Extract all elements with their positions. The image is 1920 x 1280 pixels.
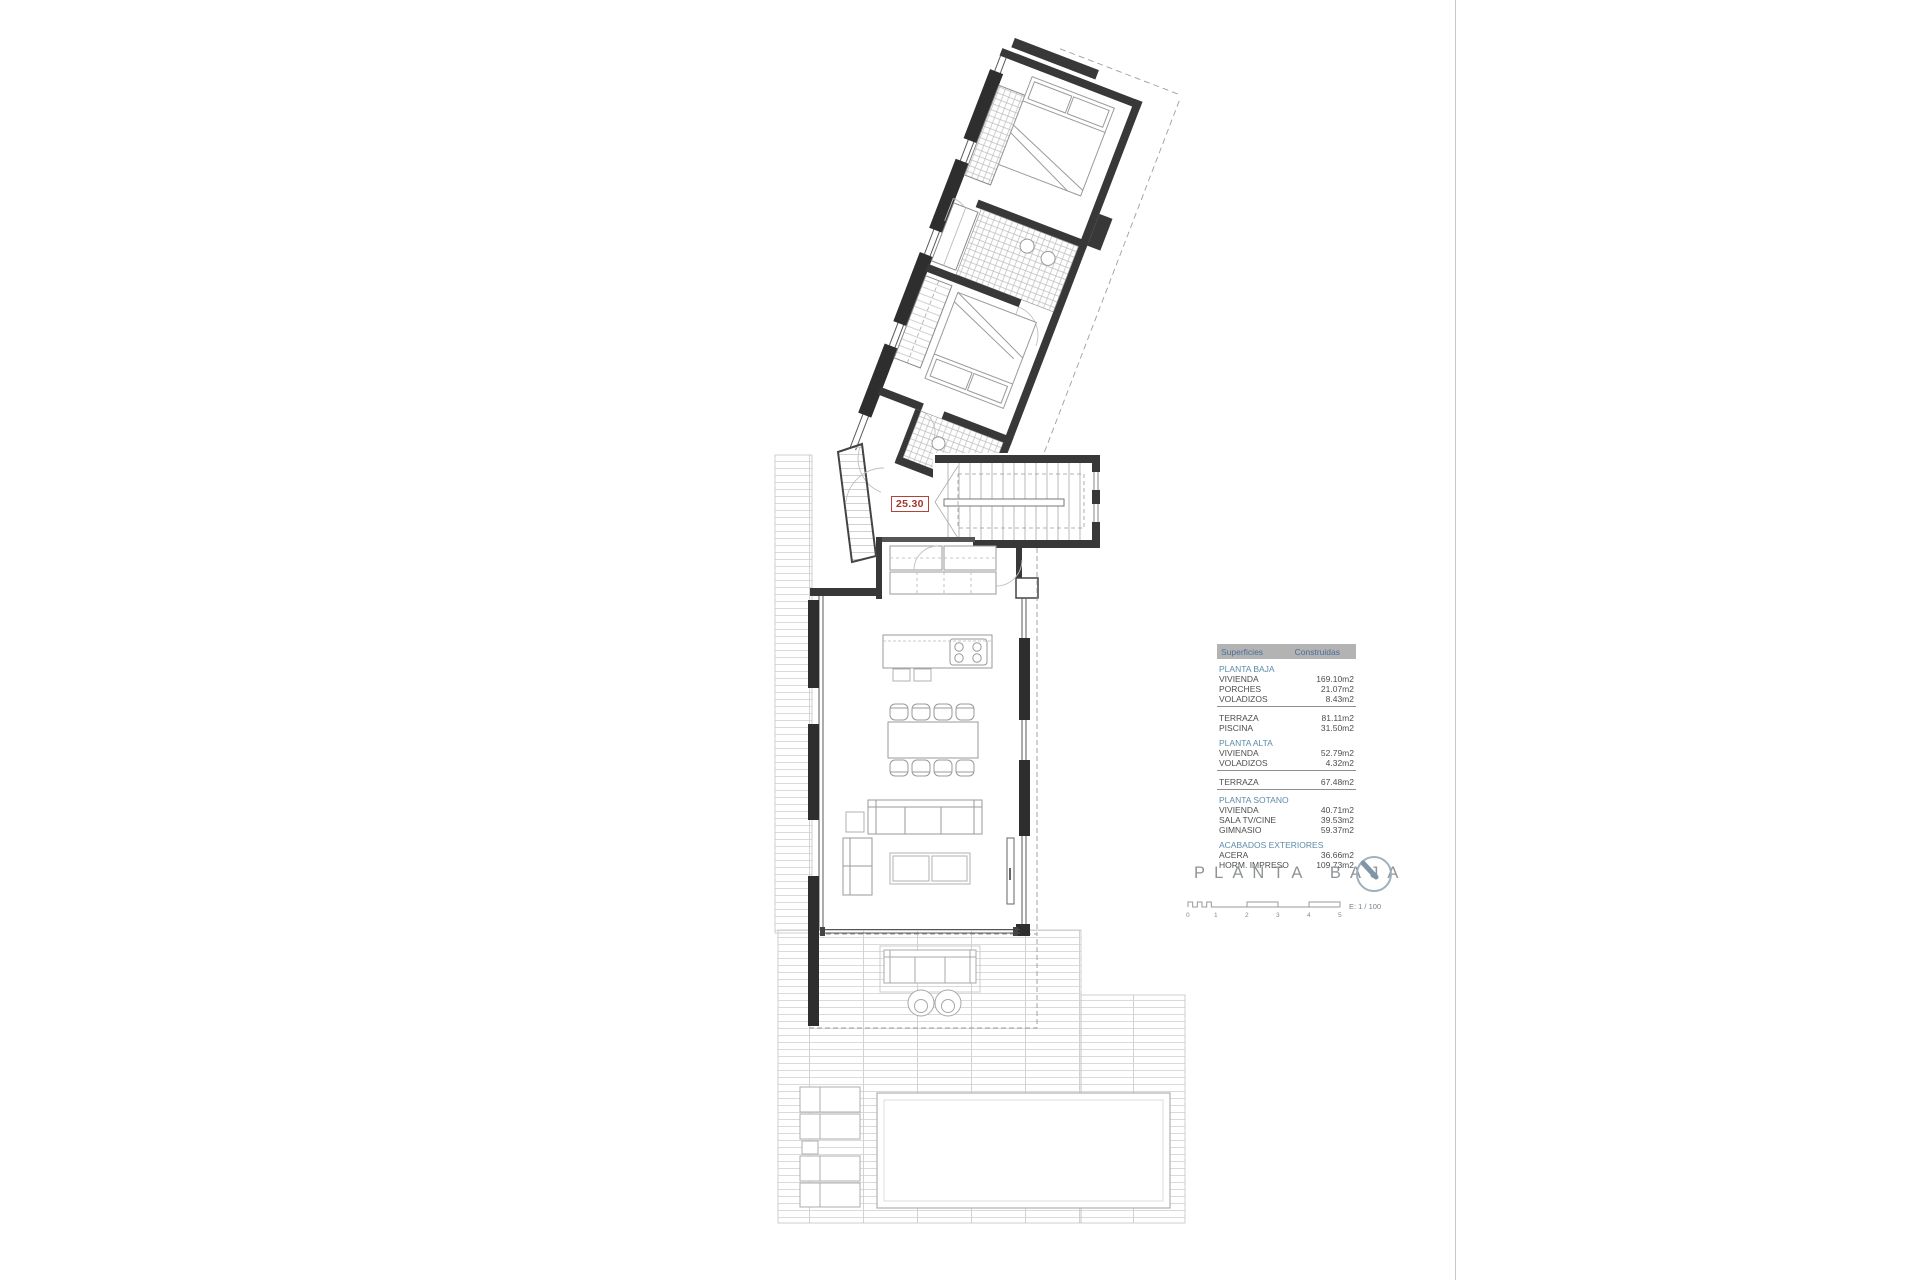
- table-row: VIVIENDA169.10m2: [1217, 674, 1356, 684]
- scale-tick-0: 0: [1186, 912, 1190, 919]
- table-row: VIVIENDA40.71m2: [1217, 805, 1356, 815]
- table-section-row: PLANTA BAJA: [1217, 664, 1356, 674]
- table-row: GIMNASIO59.37m2: [1217, 825, 1356, 835]
- floor-plan-page: 25.30 Superficies Construidas PLANTA BAJ…: [0, 0, 1920, 1280]
- header-superficies: Superficies: [1221, 647, 1263, 657]
- kitchen-island: [883, 635, 992, 681]
- table-row: VOLADIZOS4.32m2: [1217, 758, 1356, 771]
- scale-tick-2: 2: [1245, 912, 1249, 919]
- surfaces-table-header: Superficies Construidas: [1217, 644, 1356, 659]
- page-divider: [1455, 0, 1456, 1280]
- staircase: [933, 453, 1102, 550]
- dimension-label: 25.30: [891, 496, 929, 512]
- table-row: SALA TV/CINE39.53m2: [1217, 815, 1356, 825]
- table-section-row: ACABADOS EXTERIORES: [1217, 840, 1356, 850]
- table-row: TERRAZA67.48m2: [1217, 777, 1356, 790]
- header-construidas: Construidas: [1295, 647, 1352, 657]
- scale-tick-5: 5: [1338, 912, 1342, 919]
- sofa-set: [843, 800, 982, 895]
- dining-table: [888, 704, 978, 776]
- scale-tick-1: 1: [1214, 912, 1218, 919]
- table-row: ACERA36.66m2: [1217, 850, 1356, 860]
- table-row: VOLADIZOS8.43m2: [1217, 694, 1356, 707]
- surfaces-table: Superficies Construidas PLANTA BAJA VIVI…: [1217, 644, 1356, 870]
- table-row: PISCINA31.50m2: [1217, 723, 1356, 733]
- scale-ratio: E: 1 / 100: [1349, 902, 1381, 911]
- table-section-row: PLANTA SOTANO: [1217, 795, 1356, 805]
- table-row: VIVIENDA52.79m2: [1217, 748, 1356, 758]
- table-row: TERRAZA81.11m2: [1217, 713, 1356, 723]
- floor-plan-drawing: [0, 0, 1456, 1280]
- table-section-row: PLANTA ALTA: [1217, 738, 1356, 748]
- pool: [877, 1093, 1170, 1208]
- scale-tick-3: 3: [1276, 912, 1280, 919]
- scale-tick-4: 4: [1307, 912, 1311, 919]
- scale-bar: 0 1 2 3 4 5 E: 1 / 100: [1183, 893, 1398, 923]
- table-row: PORCHES21.07m2: [1217, 684, 1356, 694]
